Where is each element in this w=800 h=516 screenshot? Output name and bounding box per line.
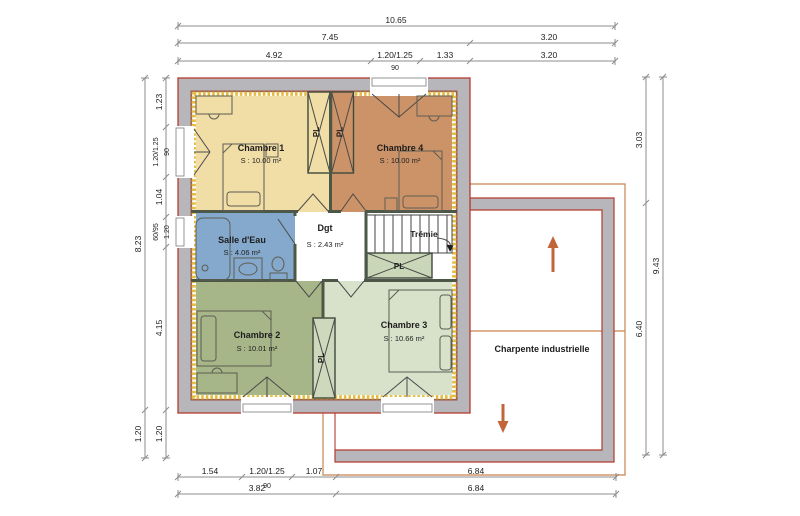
dim-top-w4: 3.20 — [541, 50, 558, 60]
dim-left-s5: 4.15 — [154, 319, 164, 336]
dim-left-s6: 1.20 — [154, 425, 164, 442]
dim-right-total: 9.43 — [651, 257, 661, 274]
dim-left-s4: 60/95 — [153, 223, 160, 241]
dim-top-sub: 90 — [391, 65, 399, 72]
chambre2-name: Chambre 2 — [234, 330, 281, 340]
dimensions-right: 3.03 6.40 9.43 — [634, 74, 667, 458]
closet-top-right: PL — [332, 92, 354, 173]
dim-left-total: 8.23 — [133, 235, 143, 252]
closet-label: PL — [312, 127, 321, 137]
dim-top-left: 7.45 — [322, 32, 339, 42]
dim-top-w3: 1.33 — [437, 50, 454, 60]
dim-top-w2: 1.20/1.25 — [377, 50, 413, 60]
dim-right-s2: 6.40 — [634, 320, 644, 337]
dim-top-w1: 4.92 — [266, 50, 283, 60]
salle-eau-area: S : 4.06 m² — [224, 248, 261, 257]
chambre4-area: S : 10.00 m² — [380, 156, 421, 165]
dim-right-s1: 3.03 — [634, 131, 644, 148]
floor-plan-drawing: Charpente industrielle PL PL — [0, 0, 800, 516]
degagement-area: S : 2.43 m² — [307, 240, 344, 249]
dimensions-left: 8.23 1.20 1.23 1.20/1.25 90 1.04 60/95 1… — [133, 75, 171, 461]
dim-bottom-r2a: 3.82 — [249, 483, 266, 493]
dim-bottom-s2: 1.20/1.25 — [249, 466, 285, 476]
window-salle-eau-left — [174, 216, 194, 248]
floor-plan-canvas: Charpente industrielle PL PL — [0, 0, 800, 516]
closet-top-left: PL — [308, 92, 330, 173]
chambre4-name: Chambre 4 — [377, 143, 424, 153]
chambre3-area: S : 10.66 m² — [384, 334, 425, 343]
salle-eau-name: Salle d'Eau — [218, 235, 266, 245]
chambre1-area: S : 10.00 m² — [241, 156, 282, 165]
closet-label: PL — [394, 262, 404, 271]
dim-bottom-s1: 1.54 — [202, 466, 219, 476]
dim-left-s4b: 1.20 — [164, 225, 171, 239]
closet-label: PL — [336, 127, 345, 137]
dim-bottom-r2b: 6.84 — [468, 483, 485, 493]
dimensions-bottom: 1.54 1.20/1.25 1.07 6.84 90 3.82 6.84 — [175, 466, 619, 498]
chambre3-name: Chambre 3 — [381, 320, 428, 330]
closet-under-stairs: PL — [367, 253, 432, 278]
charpente-label: Charpente industrielle — [494, 344, 589, 354]
degagement-name: Dgt — [318, 223, 333, 233]
closet-bottom: PL — [313, 318, 335, 398]
closet-label: PL — [317, 353, 326, 363]
dim-left-s2: 1.20/1.25 — [153, 137, 160, 166]
chambre1-name: Chambre 1 — [238, 143, 285, 153]
dim-top-right: 3.20 — [541, 32, 558, 42]
dim-left-s2b: 90 — [164, 148, 171, 156]
dim-top-total: 10.65 — [385, 15, 407, 25]
dim-left-s1: 1.23 — [154, 93, 164, 110]
dim-left-overhang: 1.20 — [133, 425, 143, 442]
roof-arrow-down — [498, 404, 509, 433]
dim-bottom-s3: 1.07 — [306, 466, 323, 476]
dim-left-s3: 1.04 — [154, 188, 164, 205]
dim-bottom-s4: 6.84 — [468, 466, 485, 476]
chambre2-area: S : 10.01 m² — [237, 344, 278, 353]
tremie-label: Trémie — [410, 229, 438, 239]
dimensions-top: 10.65 7.45 3.20 4.92 1.20/1.25 1.33 3.20… — [175, 15, 618, 72]
roof-arrow-up — [548, 236, 559, 272]
